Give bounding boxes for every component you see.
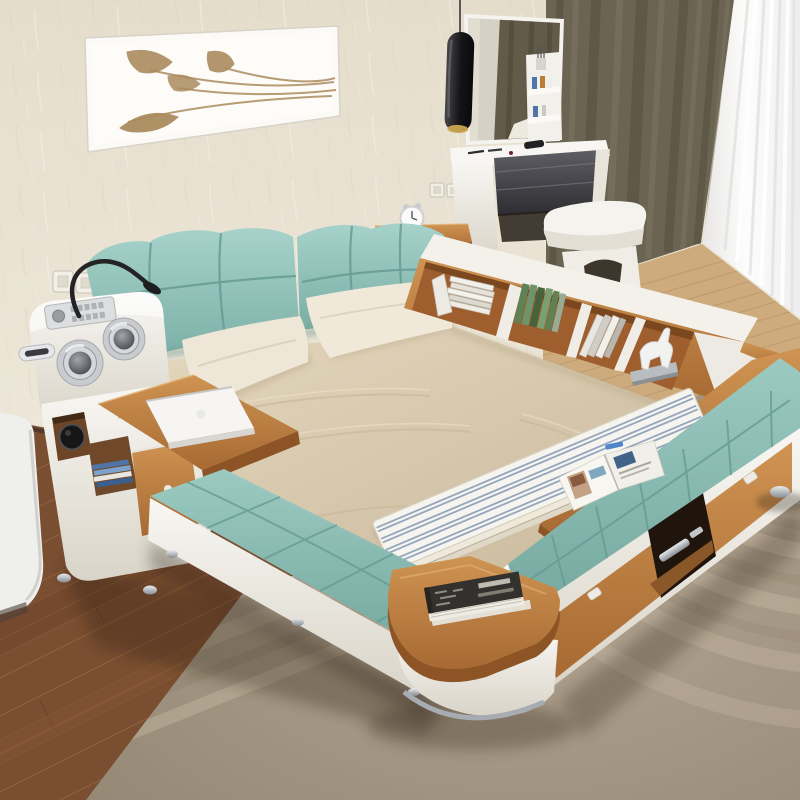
speaker-large: [57, 340, 103, 386]
speaker-small: [103, 318, 145, 360]
bedroom-photo: Multifunctional smart platform bed with …: [0, 0, 800, 800]
scene: [0, 0, 800, 800]
corner-table: [367, 556, 577, 750]
